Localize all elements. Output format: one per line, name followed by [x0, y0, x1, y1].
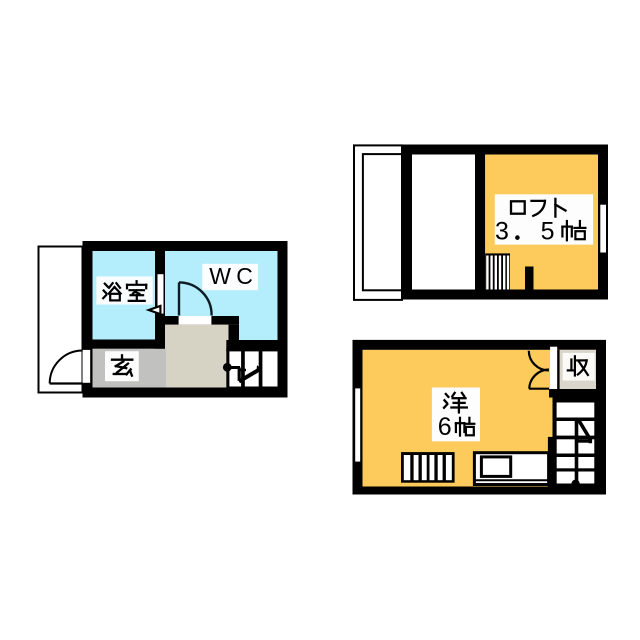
svg-text:6: 6: [438, 413, 452, 441]
svg-text:W: W: [209, 263, 231, 289]
svg-text:5: 5: [541, 217, 555, 245]
svg-text:C: C: [236, 263, 253, 289]
svg-text:3: 3: [495, 217, 509, 245]
